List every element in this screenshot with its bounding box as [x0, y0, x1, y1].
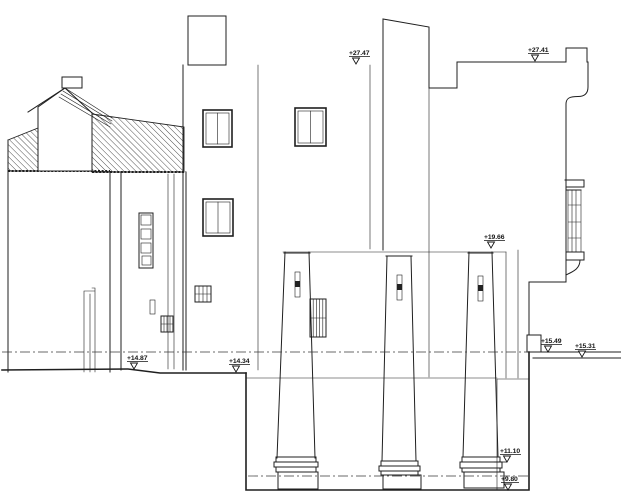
- engaged-column: [565, 104, 584, 282]
- ground-and-excavation: [2, 352, 621, 490]
- colonnade: [274, 248, 508, 489]
- marker-label: +14.87: [127, 355, 148, 362]
- right-wing-setback: [529, 282, 566, 335]
- elevation-drawing-svg: +27.47 +27.41 +19.66 +15.49 +15.31 +14.8…: [0, 0, 621, 504]
- right-wing-outline: [429, 48, 588, 180]
- window-upper-left: [203, 110, 232, 147]
- tower-walls: [121, 172, 186, 370]
- marker-label: +15.31: [575, 343, 596, 350]
- marker-label: +27.47: [349, 50, 370, 57]
- rooftop-structure: [185, 15, 232, 65]
- column-2: [379, 256, 421, 489]
- column-2-plinth: [383, 475, 421, 489]
- colonnade-grille-window: [310, 299, 326, 337]
- left-house: [8, 77, 186, 372]
- tower-window-strip: [139, 213, 153, 268]
- elevation-marker-roof-main: +27.47: [349, 50, 370, 64]
- elevation-marker-architrave: +19.66: [484, 234, 505, 248]
- marker-label: +19.66: [484, 234, 505, 241]
- ground-line-left: [2, 369, 246, 373]
- tower-slot-window: [150, 300, 155, 314]
- main-facade: [183, 15, 383, 370]
- left-roof-hatch: [8, 128, 38, 171]
- elevation-marker-terrace-upper: +15.49: [541, 338, 562, 352]
- column-3-plinth: [464, 472, 504, 488]
- excavation-pit: [246, 352, 529, 490]
- elevation-marker-terrace-lower: +15.31: [575, 343, 596, 357]
- pit-ledge: [497, 379, 529, 490]
- marker-label: +14.34: [229, 358, 250, 365]
- marker-label: +27.41: [528, 47, 549, 54]
- elevation-marker-ground-left: +14.87: [127, 355, 148, 369]
- drainpipe: [168, 174, 174, 369]
- parapet-block: [527, 335, 541, 352]
- elevation-markers: +27.47 +27.41 +19.66 +15.49 +15.31 +14.8…: [127, 47, 596, 490]
- marker-label: +15.49: [541, 338, 562, 345]
- chimney: [62, 77, 82, 88]
- elevation-marker-ground-mid: +14.34: [229, 358, 250, 372]
- upper-back-block: [383, 19, 429, 88]
- right-wing: [429, 48, 588, 378]
- elevation-marker-roof-right: +27.41: [528, 47, 549, 61]
- marker-label: +9.80: [501, 476, 518, 483]
- mid-roof-hatch: [92, 114, 184, 172]
- column-1: [274, 252, 318, 489]
- marker-label: +11.10: [500, 448, 520, 455]
- elevation-drawing: +27.47 +27.41 +19.66 +15.49 +15.31 +14.8…: [0, 0, 621, 504]
- window-lower-left: [203, 199, 233, 236]
- column-1-plinth: [278, 472, 318, 489]
- column-3: [460, 252, 504, 488]
- tower-barred-window: [161, 316, 173, 332]
- facade-barred-window: [195, 286, 211, 302]
- wall-pilaster: [84, 288, 95, 372]
- tower: [121, 172, 186, 370]
- terrace-lines-right: [533, 352, 621, 358]
- window-upper-right: [295, 108, 326, 146]
